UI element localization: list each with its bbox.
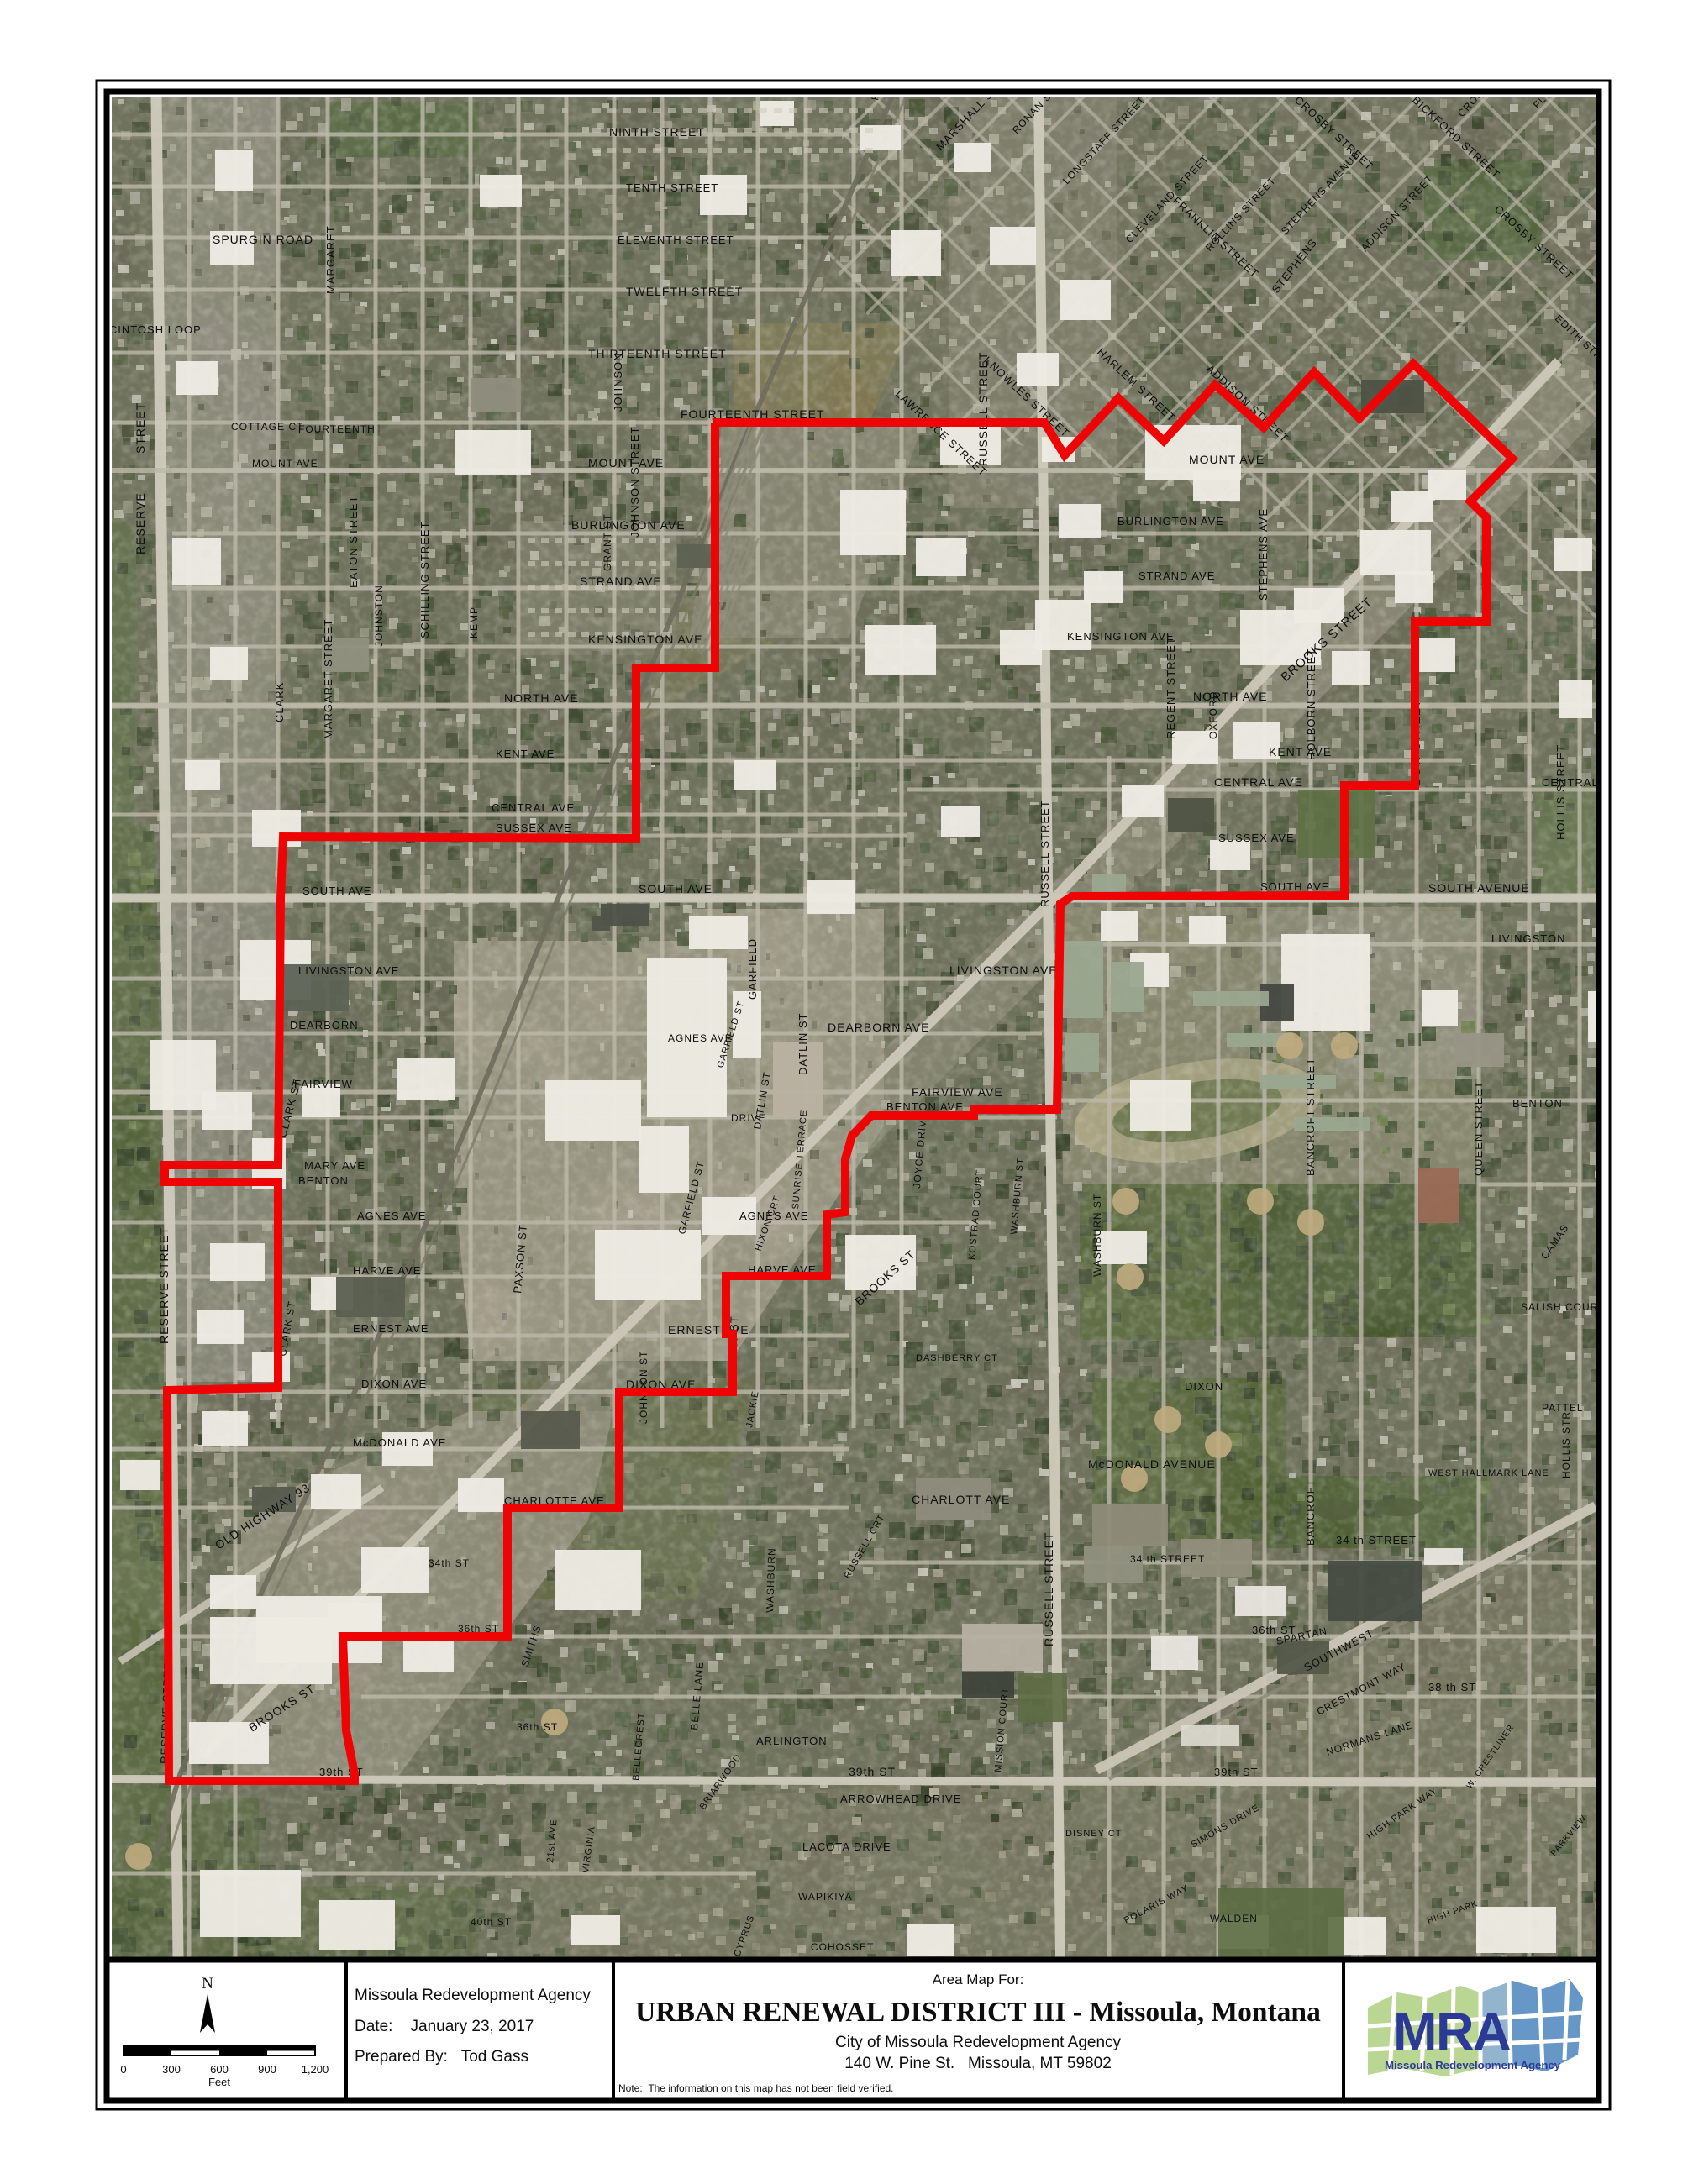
svg-text:KEMP: KEMP [468, 606, 480, 638]
svg-text:MARY AVE: MARY AVE [304, 1159, 365, 1172]
svg-text:TWELFTH STREET: TWELFTH STREET [626, 285, 743, 298]
svg-text:EATON STREET: EATON STREET [347, 496, 360, 588]
svg-text:STEPHENS AVE: STEPHENS AVE [1257, 508, 1270, 601]
svg-text:SOUTH AVENUE: SOUTH AVENUE [1428, 881, 1530, 895]
svg-text:DASHBERRY CT: DASHBERRY CT [916, 1353, 998, 1363]
svg-text:WASHBURN ST: WASHBURN ST [1091, 1194, 1103, 1277]
svg-text:GARFIELD: GARFIELD [746, 938, 759, 1000]
svg-text:KENSINGTON AVE: KENSINGTON AVE [1067, 630, 1175, 643]
svg-text:LACOTA DRIVE: LACOTA DRIVE [802, 1840, 891, 1853]
svg-text:WASHBURN: WASHBURN [764, 1547, 778, 1613]
svg-text:BURLINGTON AVE: BURLINGTON AVE [1117, 515, 1224, 528]
svg-text:0: 0 [120, 2063, 126, 2076]
svg-text:MARGARET: MARGARET [324, 225, 337, 294]
svg-text:Feet: Feet [208, 2076, 230, 2088]
svg-text:300: 300 [162, 2063, 181, 2076]
svg-text:Date: January 23, 2017: Date: January 23, 2017 [355, 2018, 534, 2035]
svg-text:SOUTH AVE: SOUTH AVE [1260, 880, 1329, 893]
svg-text:Prepared By: Tod Gass: Prepared By: Tod Gass [355, 2048, 528, 2066]
svg-text:SUSSEX AVE: SUSSEX AVE [1218, 832, 1295, 844]
svg-text:CLARK: CLARK [273, 682, 286, 722]
svg-text:40th ST: 40th ST [471, 1916, 512, 1928]
svg-text:BENTON: BENTON [298, 1174, 349, 1187]
svg-text:SOUTH AVE: SOUTH AVE [639, 882, 713, 895]
svg-text:BANCROFT STREET: BANCROFT STREET [1304, 1058, 1317, 1176]
svg-text:COTTAGE CT: COTTAGE CT [231, 421, 303, 433]
svg-text:McDONALD AVE: McDONALD AVE [353, 1436, 446, 1449]
svg-text:Area Map For:: Area Map For: [933, 1971, 1024, 1987]
svg-text:WEST HALLMARK LANE: WEST HALLMARK LANE [1428, 1468, 1549, 1478]
svg-text:REGENT STREET: REGENT STREET [1165, 637, 1177, 739]
svg-text:MOUNT AVE: MOUNT AVE [1189, 453, 1265, 466]
svg-text:DISNEY CT: DISNEY CT [1065, 1829, 1122, 1839]
svg-text:SPURGIN ROAD: SPURGIN ROAD [213, 233, 313, 246]
svg-text:FOURTEENTH: FOURTEENTH [298, 423, 376, 435]
svg-text:38 th ST: 38 th ST [1428, 1681, 1476, 1693]
svg-text:DEARBORN AVE: DEARBORN AVE [828, 1021, 929, 1034]
svg-text:GRANT ST: GRANT ST [602, 514, 613, 571]
svg-text:N: N [202, 1975, 213, 1992]
svg-text:SUSSEX AVE: SUSSEX AVE [496, 822, 572, 834]
svg-text:BENTON AVE: BENTON AVE [886, 1100, 964, 1113]
svg-text:34 th STREET: 34 th STREET [1130, 1553, 1205, 1565]
svg-text:140 W. Pine St. Missoula, MT: 140 W. Pine St. Missoula, MT 59802 [844, 2055, 1112, 2072]
svg-text:KENT AVE: KENT AVE [1269, 745, 1332, 759]
svg-text:1,200: 1,200 [302, 2063, 329, 2076]
svg-text:Missoula Redevelopment Agency: Missoula Redevelopment Agency [355, 1987, 591, 2004]
svg-text:STRAND AVE: STRAND AVE [1138, 570, 1215, 582]
svg-text:FAIRVIEW AVE: FAIRVIEW AVE [912, 1085, 1003, 1099]
svg-text:CENTRAL AVE: CENTRAL AVE [1214, 775, 1303, 789]
svg-text:LIVINGSTON AVE: LIVINGSTON AVE [949, 963, 1058, 977]
svg-text:RESERVE: RESERVE [134, 492, 147, 554]
svg-text:LIVINGSTON: LIVINGSTON [1491, 932, 1566, 945]
svg-text:WAPIKIYA: WAPIKIYA [798, 1891, 853, 1903]
svg-text:900: 900 [258, 2063, 276, 2076]
svg-text:City of Missoula Redevelopment: City of Missoula Redevelopment Agency [835, 2034, 1122, 2051]
svg-text:ARLINGTON: ARLINGTON [756, 1735, 828, 1747]
svg-text:SOUTH AVE: SOUTH AVE [302, 885, 371, 897]
svg-text:ELEVENTH STREET: ELEVENTH STREET [618, 234, 734, 246]
svg-text:DIXON: DIXON [1185, 1380, 1223, 1393]
svg-text:QUEEN STREET: QUEEN STREET [1472, 1081, 1485, 1176]
svg-text:MOUNT AVE: MOUNT AVE [588, 456, 664, 470]
svg-text:39th ST: 39th ST [849, 1765, 896, 1778]
svg-text:34 th STREET: 34 th STREET [1336, 1534, 1417, 1546]
svg-text:OXFORD: OXFORD [1207, 691, 1219, 739]
svg-text:MRA: MRA [1393, 2003, 1510, 2061]
svg-text:JOHNSON ST: JOHNSON ST [638, 1351, 649, 1424]
svg-text:RUSSELL STREET: RUSSELL STREET [1039, 800, 1051, 907]
svg-text:DIXON AVE: DIXON AVE [361, 1378, 427, 1390]
svg-text:NINTH STREET: NINTH STREET [609, 125, 705, 139]
svg-text:ERNEST AVE: ERNEST AVE [353, 1322, 429, 1335]
svg-text:LIVINGSTON AVE: LIVINGSTON AVE [298, 964, 399, 977]
svg-text:AGNES AVE: AGNES AVE [357, 1210, 426, 1222]
svg-text:HOLLIS STR: HOLLIS STR [1560, 1411, 1572, 1478]
svg-text:JOHNSON: JOHNSON [612, 352, 624, 412]
svg-text:MARGARET STREET: MARGARET STREET [322, 619, 334, 739]
svg-text:HOLBORN STREET: HOLBORN STREET [1305, 648, 1317, 760]
svg-text:RESERVE STREET: RESERVE STREET [157, 1226, 171, 1344]
svg-text:RUSSELL STREET: RUSSELL STREET [1042, 1532, 1055, 1646]
svg-text:NORTH AVE: NORTH AVE [504, 691, 579, 705]
svg-text:STREET: STREET [134, 402, 147, 454]
svg-text:Missoula Redevelopment Agency: Missoula Redevelopment Agency [1385, 2059, 1561, 2071]
svg-text:SCHILLING STREET: SCHILLING STREET [418, 521, 431, 638]
svg-text:34th ST: 34th ST [429, 1557, 470, 1569]
svg-text:DEARBORN: DEARBORN [290, 1019, 359, 1032]
svg-text:CENTRAL AVE: CENTRAL AVE [492, 801, 575, 814]
svg-text:COHOSSET: COHOSSET [811, 1941, 874, 1953]
svg-text:DATLIN ST: DATLIN ST [797, 1013, 809, 1076]
svg-text:JOHNSTON: JOHNSTON [373, 585, 385, 647]
svg-text:HOLLIS STREET: HOLLIS STREET [1554, 744, 1567, 840]
svg-text:NORTH AVE: NORTH AVE [1193, 690, 1268, 703]
svg-text:McDONALD AVENUE: McDONALD AVENUE [1088, 1457, 1216, 1471]
svg-text:MOUNT AVE: MOUNT AVE [252, 458, 318, 470]
svg-text:36th ST: 36th ST [517, 1721, 558, 1733]
svg-text:JOHNSON STREET: JOHNSON STREET [628, 427, 641, 538]
svg-text:600: 600 [210, 2063, 229, 2076]
svg-text:KENT AVE: KENT AVE [496, 748, 555, 760]
svg-text:ARROWHEAD DRIVE: ARROWHEAD DRIVE [840, 1793, 961, 1805]
svg-text:TENTH STREET: TENTH STREET [626, 181, 718, 194]
svg-text:PATTEL: PATTEL [1542, 1402, 1584, 1414]
svg-text:CHARLOTT AVE: CHARLOTT AVE [912, 1493, 1010, 1506]
svg-text:BENTON: BENTON [1512, 1097, 1563, 1110]
svg-text:THIRTEENTH STREET: THIRTEENTH STREET [588, 347, 727, 360]
svg-text:URBAN RENEWAL DISTRICT III - M: URBAN RENEWAL DISTRICT III - Missoula, M… [635, 1997, 1321, 2028]
svg-text:STRAND AVE: STRAND AVE [580, 575, 662, 588]
svg-text:Note: The information on this: Note: The information on this map has no… [618, 2082, 894, 2094]
svg-text:39th ST: 39th ST [1214, 1766, 1259, 1778]
svg-text:MCINTOSH LOOP: MCINTOSH LOOP [99, 323, 202, 336]
svg-text:SALISH COURT: SALISH COURT [1521, 1301, 1605, 1313]
svg-text:BANCROFT: BANCROFT [1304, 1479, 1317, 1546]
svg-text:FAIRVIEW: FAIRVIEW [294, 1078, 353, 1090]
svg-text:KENSINGTON AVE: KENSINGTON AVE [588, 633, 702, 646]
svg-text:WALDEN: WALDEN [1210, 1913, 1258, 1924]
svg-text:HARVE AVE: HARVE AVE [353, 1264, 422, 1277]
